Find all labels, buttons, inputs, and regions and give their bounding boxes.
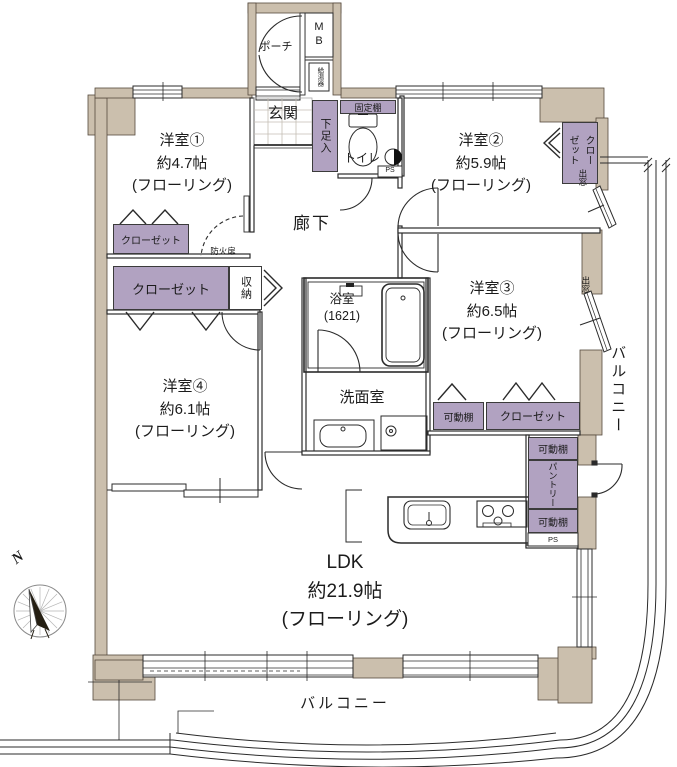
closet-room2: クローゼット [562,122,598,184]
storage-cabinet: 収納 [229,266,262,310]
movable-shelf-1: 可動棚 [433,402,484,430]
closet-room2-label: クローゼット [564,135,596,171]
storage-cabinet-label: 収納 [238,276,254,300]
movable-shelf-2-label: 可動棚 [538,441,568,456]
toilet-fixture [349,110,402,166]
shoe-cabinet: 下足入 [312,100,338,172]
entrance-tiles [254,98,312,145]
bath-door [318,330,360,372]
closet-room3: クローゼット [486,402,580,430]
movable-shelf-2: 可動棚 [528,437,578,460]
interior-walls [107,96,600,548]
room3-door [398,234,438,272]
porch-double-door [259,13,305,95]
closet-room1: クローゼット [113,224,189,254]
floorplan-linework [0,0,677,767]
movable-shelf-3-label: 可動棚 [538,514,568,529]
hand-sink [385,149,402,165]
closet-marks [120,128,560,400]
closet-room1-label: クローゼット [121,232,181,247]
bath-unit [304,278,428,372]
compass-icon [14,585,66,639]
room4-door [222,312,260,350]
fixed-shelf: 固定棚 [340,100,396,114]
closet-room3-label: クローゼット [500,408,566,424]
movable-shelf-3: 可動棚 [528,509,578,533]
vanity [314,420,374,451]
bathtub [382,284,424,366]
fire-door [201,196,249,256]
fixed-shelf-label: 固定棚 [354,101,381,114]
window-lines [133,82,597,681]
kitchen [346,490,533,543]
floor-plan: 下足入 固定棚 クローゼット クローゼット 収納 クローゼット 可動棚 クローゼ… [0,0,677,767]
kitchen-side-counter [346,490,362,542]
washroom-door [265,452,302,489]
movable-shelf-1-label: 可動棚 [444,409,474,424]
entrance-step [254,145,312,148]
shoe-cabinet-label: 下足入 [317,118,333,154]
stove [477,501,527,527]
pantry: パントリー [528,460,578,509]
closet-room4-label: クローゼット [132,279,210,298]
toilet-door [340,178,372,210]
balcony-door [592,461,622,497]
washroom-fixtures [314,416,427,451]
sliding-partition [107,478,260,503]
kitchen-sink [404,501,450,529]
washer-pan [381,416,427,450]
room2-door [398,188,438,226]
closet-room4: クローゼット [113,266,229,310]
pantry-label: パントリー [547,462,560,507]
